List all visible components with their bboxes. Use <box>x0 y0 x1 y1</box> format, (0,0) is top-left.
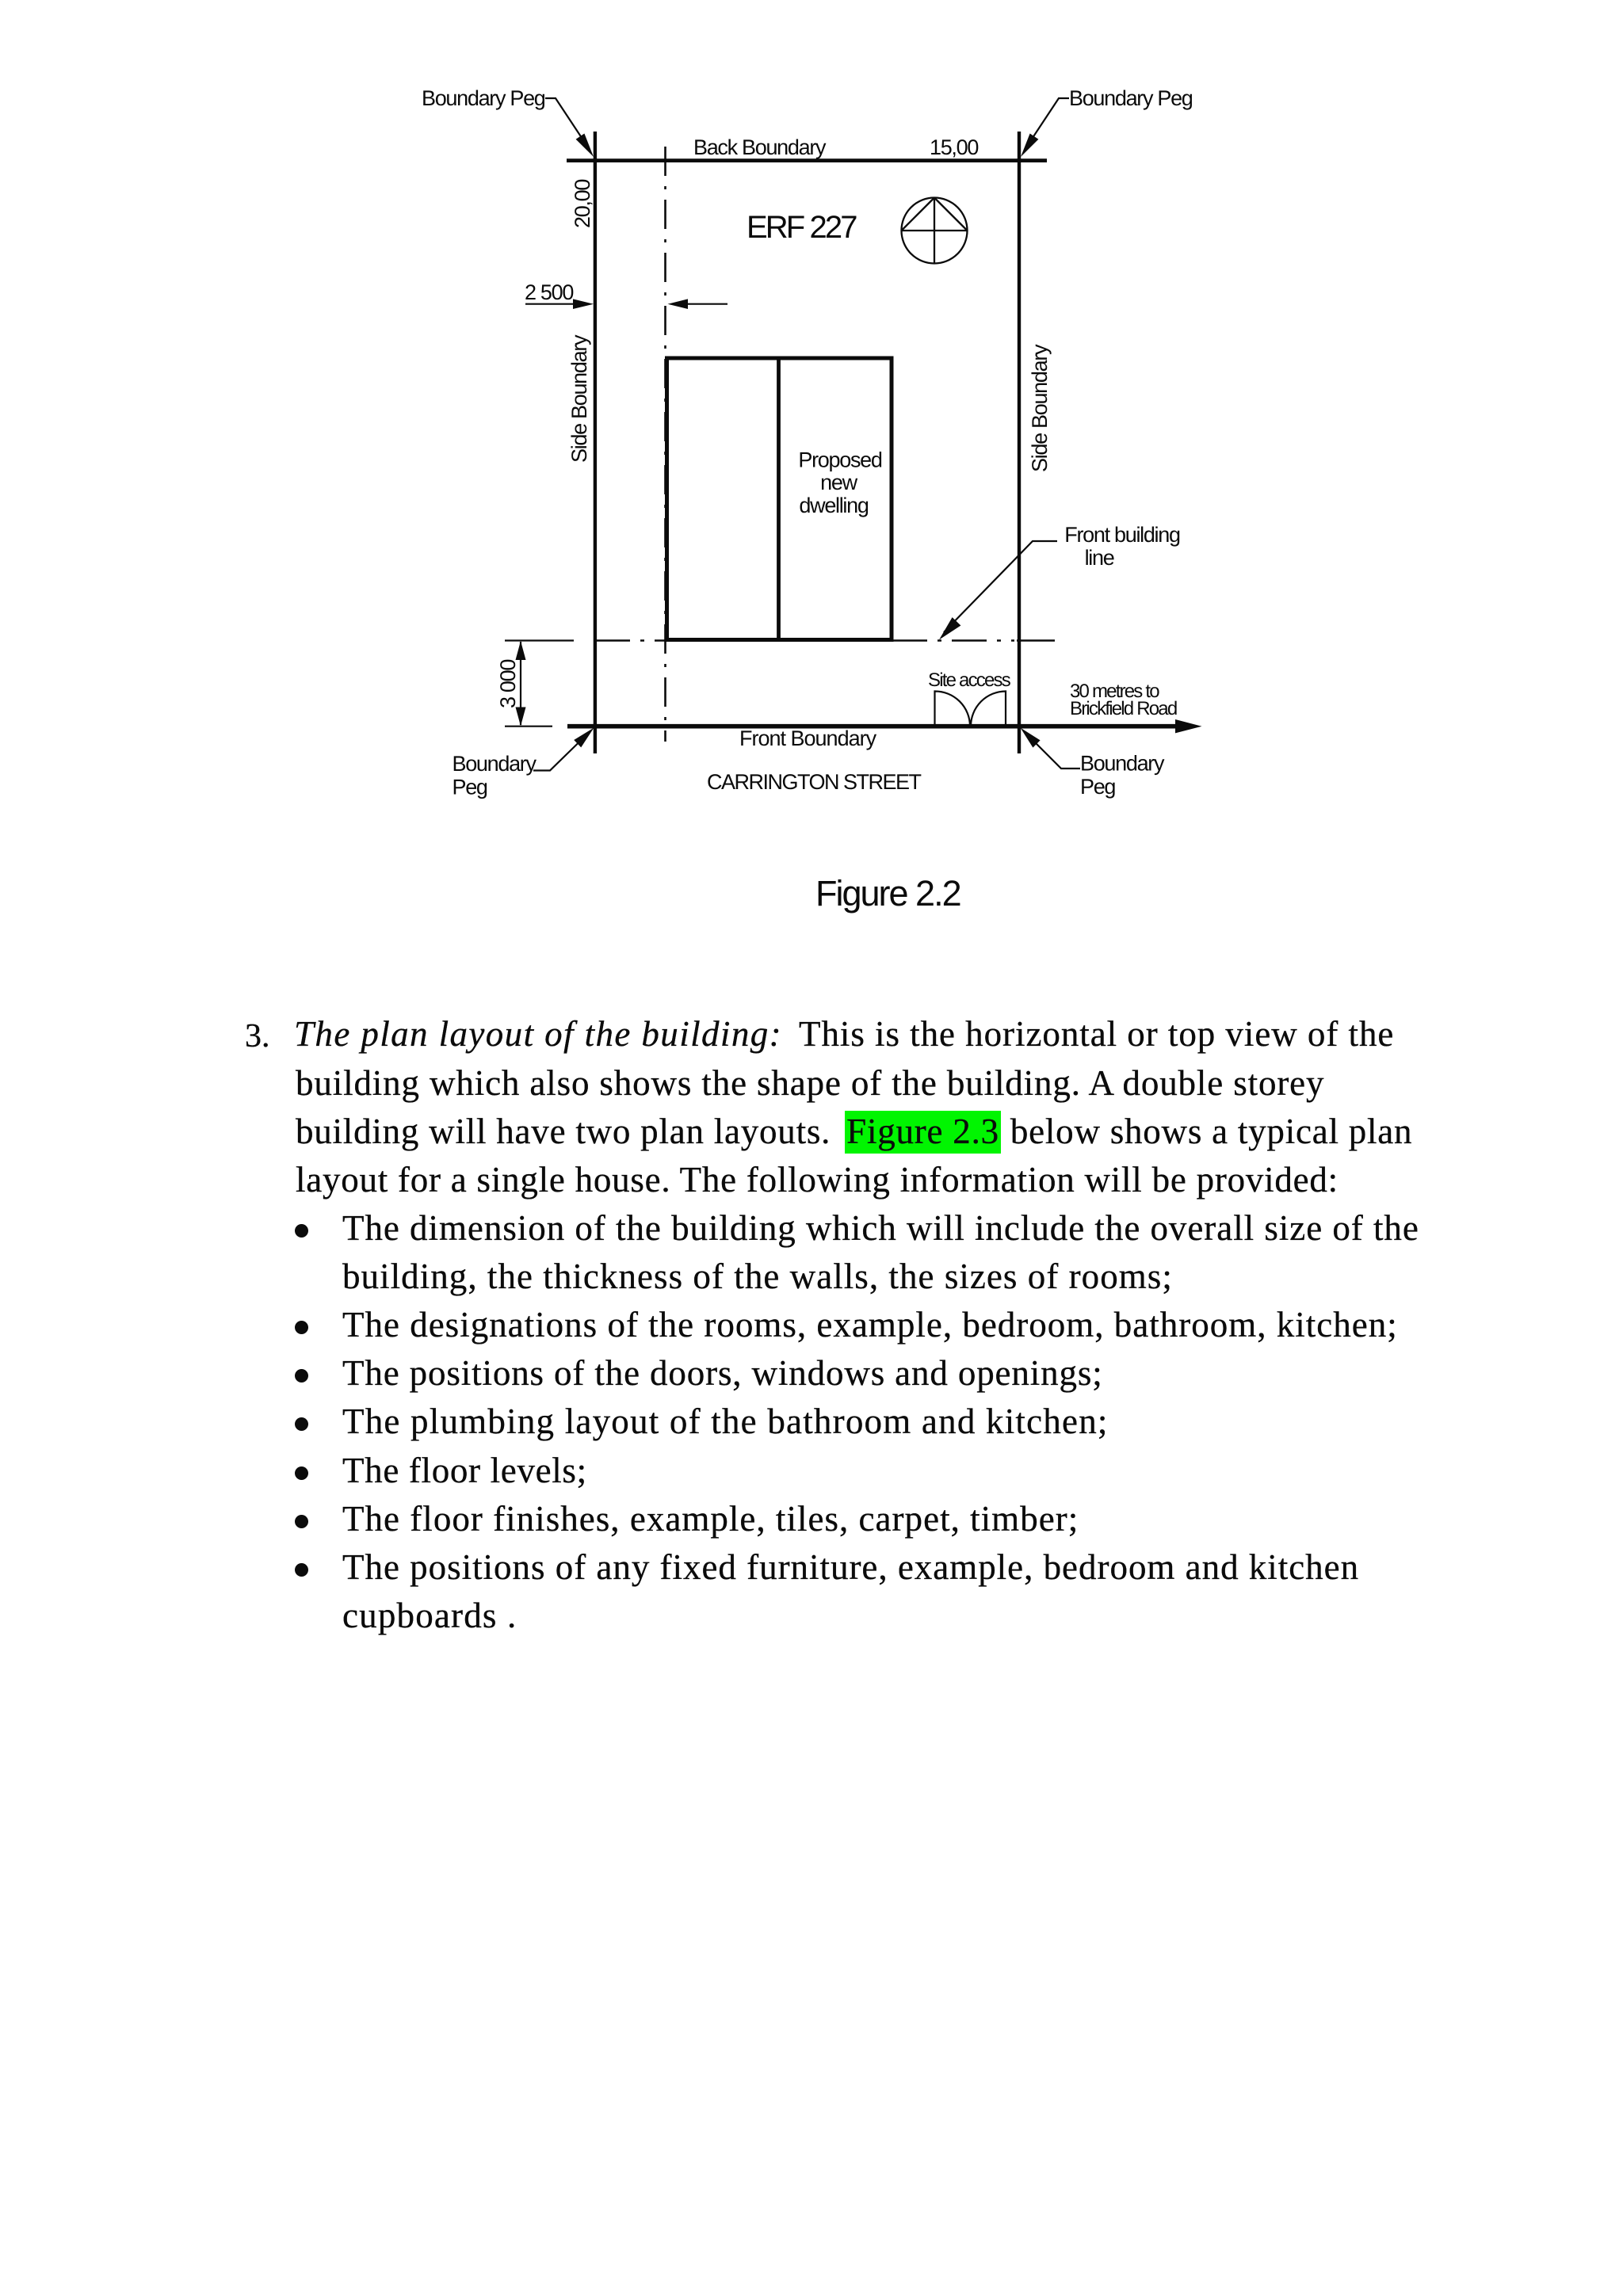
svg-text:Peg: Peg <box>1080 775 1115 799</box>
svg-text:dwelling: dwelling <box>799 494 868 517</box>
svg-text:CARRINGTON STREET: CARRINGTON STREET <box>707 770 922 794</box>
svg-text:Front building: Front building <box>1064 523 1180 547</box>
svg-text:Boundary: Boundary <box>1080 751 1165 775</box>
svg-text:3 000: 3 000 <box>496 660 520 708</box>
svg-text:Back Boundary: Back Boundary <box>693 135 827 159</box>
svg-text:Site access: Site access <box>928 669 1011 691</box>
svg-text:Side Boundary: Side Boundary <box>1028 344 1052 472</box>
svg-text:line: line <box>1085 546 1114 570</box>
svg-text:ERF 227: ERF 227 <box>747 210 857 245</box>
svg-text:20,00: 20,00 <box>571 180 594 228</box>
svg-text:Boundary Peg: Boundary Peg <box>422 86 545 110</box>
svg-text:new: new <box>820 471 857 494</box>
svg-text:Front Boundary: Front Boundary <box>739 727 877 750</box>
svg-text:15,00: 15,00 <box>930 135 978 159</box>
svg-text:Boundary: Boundary <box>453 752 537 776</box>
svg-text:Proposed: Proposed <box>798 448 881 472</box>
svg-text:Brickfield Road: Brickfield Road <box>1070 698 1177 719</box>
svg-text:2 500: 2 500 <box>525 280 573 304</box>
svg-text:Boundary Peg: Boundary Peg <box>1069 86 1193 110</box>
svg-text:Side Boundary: Side Boundary <box>567 334 591 463</box>
svg-text:Peg: Peg <box>453 775 487 799</box>
